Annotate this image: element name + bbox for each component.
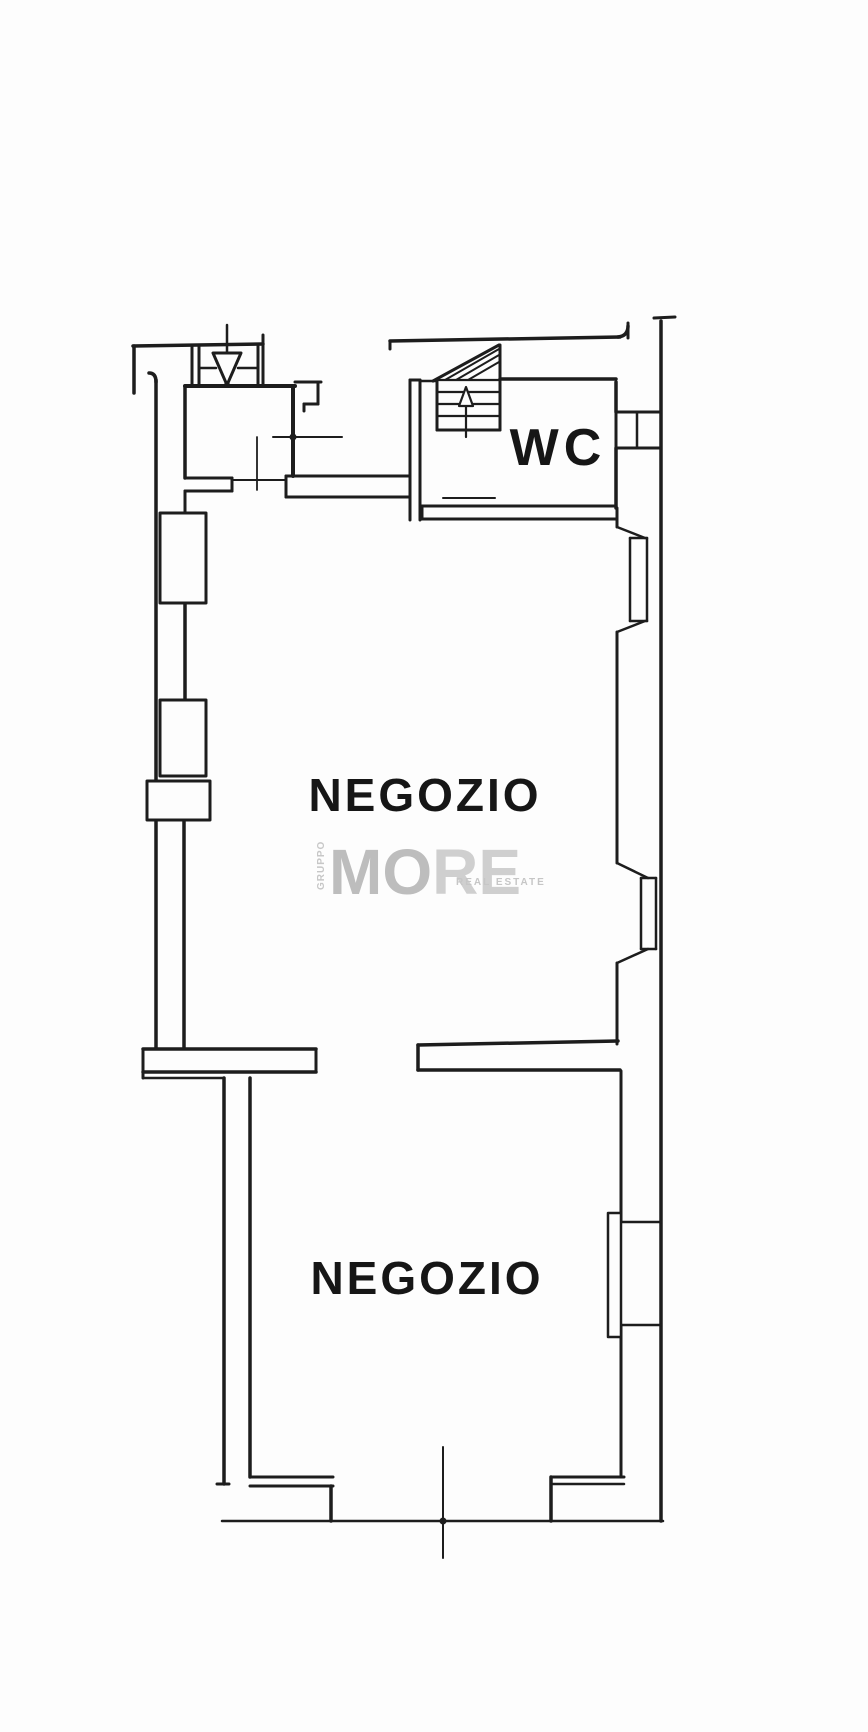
left-wall-pillar [147,781,210,820]
entrance-arrow-down [213,353,241,385]
stair-hatch [445,349,499,380]
left-wall-window-lower [160,700,206,776]
window-reveal [617,949,648,963]
room-label-wc: WC [510,418,607,478]
watermark-tagline: REAL ESTATE [456,877,546,888]
stair-arrow-up [459,387,473,406]
window-reveal [617,621,645,632]
entrance-arrow-tip-dot [224,382,230,388]
watermark-brand: MORE [329,840,521,904]
top-right-corner-dash [654,317,675,318]
left-wall-window-upper [160,513,206,603]
window-reveal [617,863,648,878]
watermark-group-word: GRUPPO [316,843,327,890]
window-reveal [617,527,645,538]
dividing-wall-right [418,1041,618,1045]
top-boundary-right [390,337,620,341]
door-hinge-dot [290,434,297,441]
door-hinge-dot [440,1518,447,1525]
room-label-negozio-upper: NEGOZIO [308,768,541,822]
watermark-brand-mo: MO [329,836,432,908]
watermark-brand-re: RE [432,836,521,908]
stair-hatch [456,355,499,380]
stair-diagonal [433,345,499,381]
left-wall-top-corner [149,373,156,382]
scan-page: NEGOZIO NEGOZIO WC GRUPPO MORE REAL ESTA… [0,0,868,1732]
room-label-negozio-lower: NEGOZIO [310,1251,543,1305]
right-wall-window-sill [608,1213,621,1337]
